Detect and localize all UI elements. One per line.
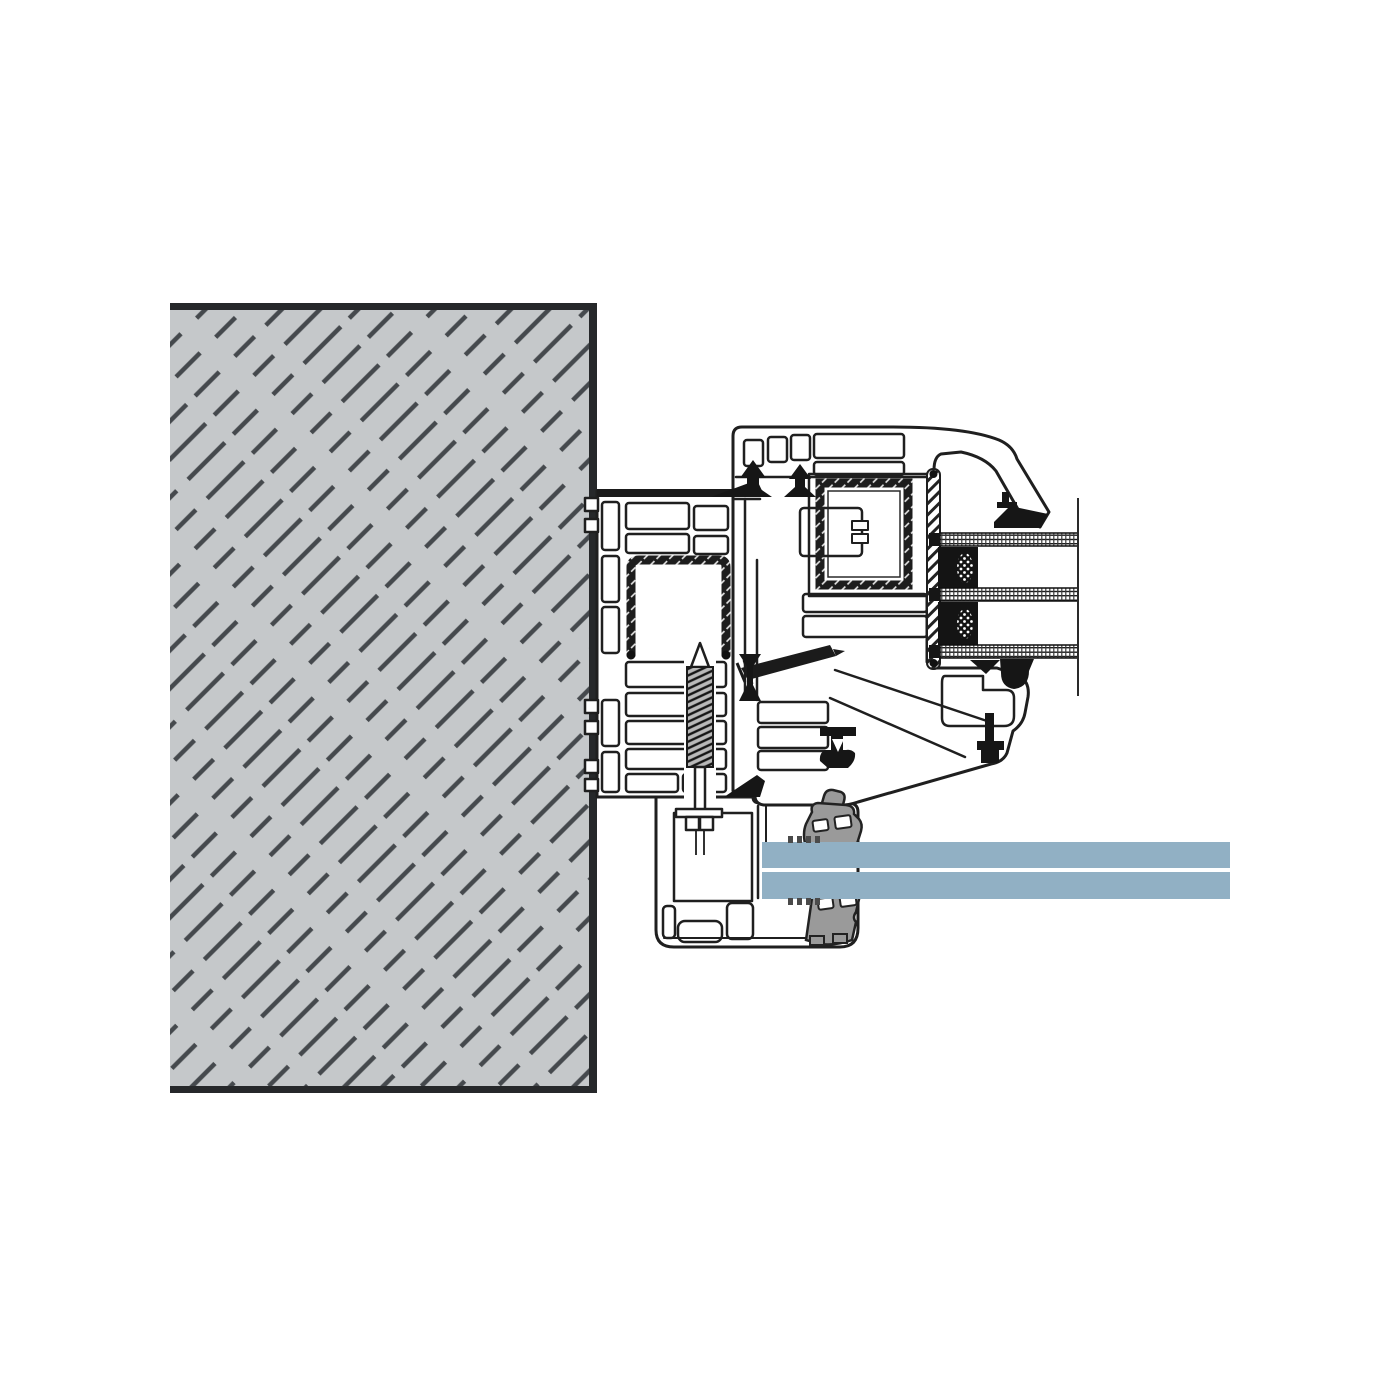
sash-chamber xyxy=(768,437,787,462)
screw-nut xyxy=(686,817,699,830)
frame-chamber xyxy=(602,700,619,746)
butyl-edge xyxy=(929,645,940,658)
glass-panel-upper xyxy=(762,842,1230,868)
sill-chamber xyxy=(727,903,753,939)
clamp-hole xyxy=(812,819,828,832)
frame-tab xyxy=(585,760,598,773)
desiccant xyxy=(957,609,973,639)
clamp-foot xyxy=(833,934,847,943)
glass-pane xyxy=(940,588,1078,601)
butyl-edge xyxy=(929,588,940,601)
sill-chamber xyxy=(663,906,675,938)
frame-chamber xyxy=(626,774,678,792)
frame-tab xyxy=(585,700,598,713)
screw-shaft xyxy=(695,767,705,811)
wall-border-bottom xyxy=(170,1086,597,1093)
frame-tab xyxy=(585,498,598,511)
desiccant xyxy=(957,553,973,583)
frame-chamber xyxy=(626,534,689,553)
sash-chamber xyxy=(791,435,810,460)
frame-chamber xyxy=(602,556,619,602)
sash-finger xyxy=(852,521,868,530)
frame-tab xyxy=(585,519,598,532)
frame-chamber xyxy=(602,607,619,653)
wall-hatching xyxy=(170,303,590,1093)
frame-profile xyxy=(585,489,745,797)
butyl-edge xyxy=(929,533,940,546)
screw-thread xyxy=(687,667,713,767)
frame-tab xyxy=(585,779,598,791)
screw-nut xyxy=(700,817,713,830)
technical-drawing-page xyxy=(0,0,1400,1400)
frame-chamber xyxy=(602,752,619,792)
frame-tab xyxy=(585,721,598,734)
wall-border-top xyxy=(170,303,597,310)
clamp-hole xyxy=(834,815,852,829)
sash-chamber xyxy=(814,434,904,458)
masonry-wall xyxy=(170,303,597,1093)
section-drawing xyxy=(0,0,1400,1400)
frame-chamber xyxy=(602,502,619,550)
frame-chamber xyxy=(626,503,689,529)
sash-finger xyxy=(852,534,868,543)
glass-pane xyxy=(940,645,1078,658)
frame-chamber xyxy=(694,506,728,530)
glass-panel-lower xyxy=(762,872,1230,899)
frame-chamber xyxy=(694,536,728,554)
clamp-foot xyxy=(810,936,824,945)
glass-pane xyxy=(940,533,1078,546)
